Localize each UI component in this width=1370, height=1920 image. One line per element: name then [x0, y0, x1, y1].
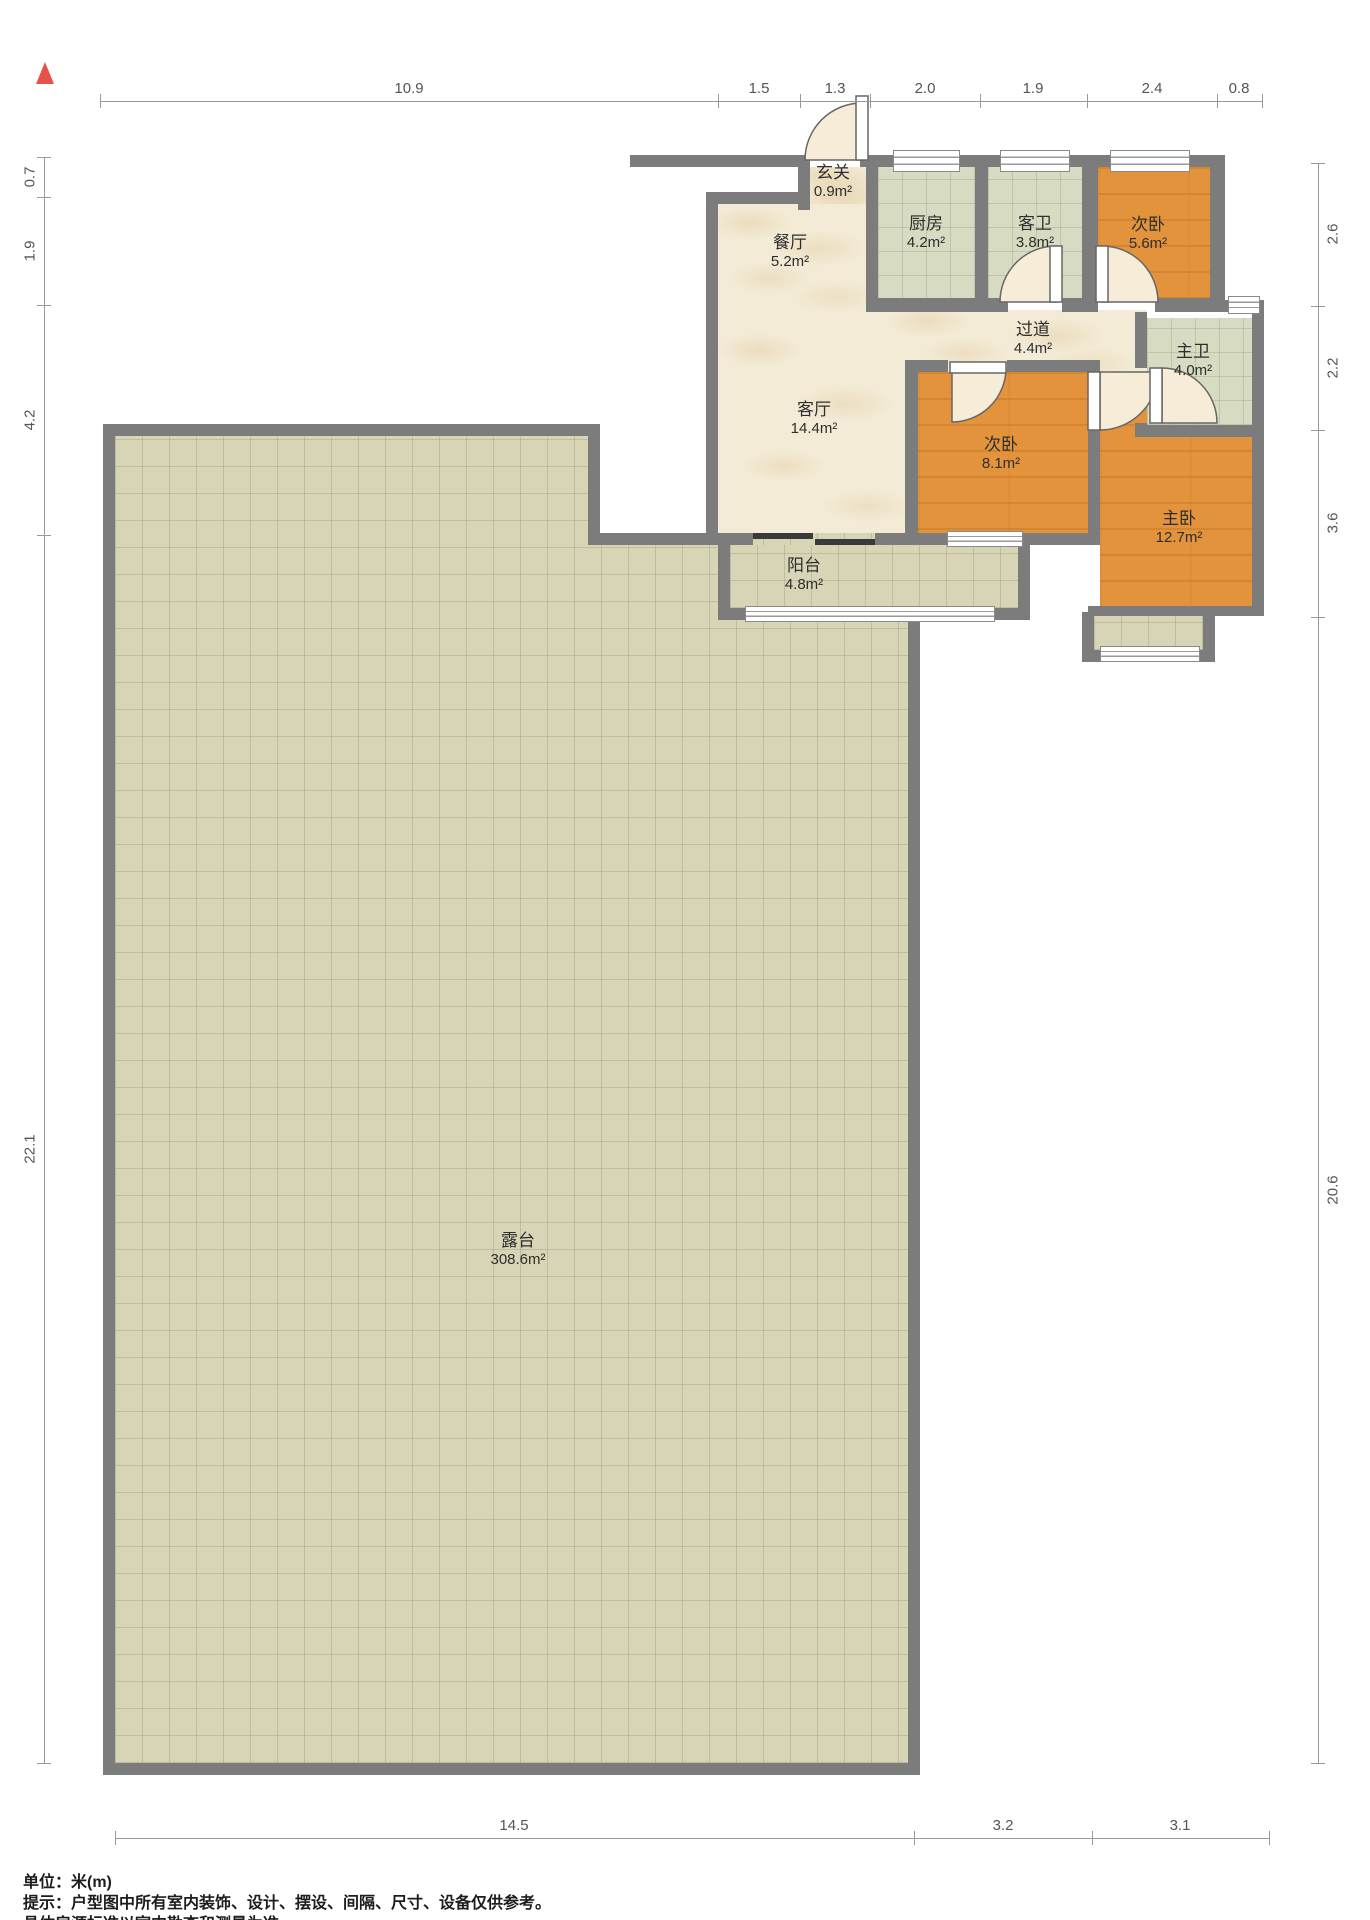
room-name: 餐厅 — [771, 233, 809, 253]
room-area: 4.0m² — [1174, 362, 1212, 380]
dim-tick — [800, 94, 801, 108]
room-name: 次卧 — [982, 435, 1020, 455]
room-label-living: 客厅 14.4m² — [791, 400, 838, 438]
room-name: 次卧 — [1129, 215, 1167, 235]
room-area: 5.2m² — [771, 253, 809, 271]
dim-tick — [718, 94, 719, 108]
door-arcs-layer — [0, 0, 1370, 1920]
dim-tick — [1087, 94, 1088, 108]
dim-tick — [37, 305, 51, 306]
guest-bath-door-arc — [1000, 246, 1056, 302]
dim-label: 2.2 — [1325, 358, 1342, 379]
dim-line-bottom — [115, 1838, 1269, 1839]
room-label-bedroom2: 次卧 5.6m² — [1129, 215, 1167, 253]
dim-tick — [115, 1831, 116, 1845]
room-label-master-bedroom: 主卧 12.7m² — [1156, 509, 1203, 547]
dim-label: 3.1 — [1170, 1817, 1191, 1834]
room-area: 4.8m² — [785, 576, 823, 594]
dim-label: 2.4 — [1142, 80, 1163, 97]
entry-door-leaf — [856, 96, 868, 160]
dim-label: 1.3 — [825, 80, 846, 97]
room-label-balcony: 阳台 4.8m² — [785, 556, 823, 594]
dim-tick — [980, 94, 981, 108]
dim-line-left — [44, 157, 45, 1763]
floorplan-canvas: 玄关 0.9m² 餐厅 5.2m² 厨房 4.2m² 客卫 3.8m² 次卧 5… — [0, 0, 1370, 1920]
dim-label: 20.6 — [1325, 1175, 1342, 1204]
room-area: 4.2m² — [907, 234, 945, 252]
dim-tick — [1311, 163, 1325, 164]
room-label-terrace: 露台 308.6m² — [490, 1231, 545, 1269]
room-name: 过道 — [1014, 320, 1052, 340]
room-area: 14.4m² — [791, 420, 838, 438]
dim-tick — [1311, 1763, 1325, 1764]
footer-note: 单位：米(m) 提示：户型图中所有室内装饰、设计、摆设、间隔、尺寸、设备仅供参考… — [23, 1872, 551, 1920]
master-bedroom-door-leaf — [1088, 372, 1100, 430]
dim-tick — [37, 1763, 51, 1764]
dim-tick — [1092, 1831, 1093, 1845]
dim-tick — [914, 1831, 915, 1845]
dim-label: 10.9 — [394, 80, 423, 97]
dim-tick — [1311, 306, 1325, 307]
dim-tick — [1311, 430, 1325, 431]
dim-tick — [37, 197, 51, 198]
dim-label: 0.8 — [1229, 80, 1250, 97]
room-label-hallway: 过道 4.4m² — [1014, 320, 1052, 358]
room-name: 客厅 — [791, 400, 838, 420]
dim-tick — [1217, 94, 1218, 108]
guest-bath-door-leaf — [1050, 246, 1062, 302]
footer-disclaimer-2: 具体房源标准以室内勘查和测量为准。 — [23, 1914, 551, 1920]
room-area: 4.4m² — [1014, 340, 1052, 358]
dim-tick — [37, 157, 51, 158]
room-area: 0.9m² — [814, 183, 852, 201]
bedroom3-door-leaf — [950, 362, 1006, 373]
dim-label: 14.5 — [499, 1817, 528, 1834]
bedroom2-door-arc — [1102, 246, 1158, 302]
footer-units: 单位：米(m) — [23, 1872, 551, 1893]
dim-label: 1.9 — [1023, 80, 1044, 97]
dim-label: 4.2 — [22, 410, 39, 431]
dim-label: 0.7 — [22, 167, 39, 188]
dim-label: 2.6 — [1325, 224, 1342, 245]
room-name: 主卫 — [1174, 342, 1212, 362]
dim-tick — [37, 535, 51, 536]
room-label-dining: 餐厅 5.2m² — [771, 233, 809, 271]
dim-tick — [1262, 94, 1263, 108]
room-name: 玄关 — [814, 163, 852, 183]
room-label-kitchen: 厨房 4.2m² — [907, 214, 945, 252]
room-label-master-bath: 主卫 4.0m² — [1174, 342, 1212, 380]
master-bath-door-leaf — [1150, 368, 1162, 423]
room-area: 3.8m² — [1016, 234, 1054, 252]
dim-label: 3.6 — [1325, 513, 1342, 534]
room-area: 308.6m² — [490, 1251, 545, 1269]
room-name: 阳台 — [785, 556, 823, 576]
room-label-entry: 玄关 0.9m² — [814, 163, 852, 201]
dim-tick — [100, 94, 101, 108]
dim-tick — [1311, 617, 1325, 618]
dim-tick — [870, 94, 871, 108]
bedroom2-door-leaf — [1096, 246, 1108, 302]
bedroom3-door-arc — [952, 368, 1006, 422]
dim-label: 1.9 — [22, 241, 39, 262]
dim-line-right — [1318, 163, 1319, 1763]
room-area: 8.1m² — [982, 455, 1020, 473]
footer-disclaimer-1: 提示：户型图中所有室内装饰、设计、摆设、间隔、尺寸、设备仅供参考。 — [23, 1893, 551, 1914]
room-name: 主卧 — [1156, 509, 1203, 529]
dim-label: 2.0 — [915, 80, 936, 97]
entry-door-arc — [805, 103, 862, 160]
room-label-guest-bath: 客卫 3.8m² — [1016, 214, 1054, 252]
room-name: 露台 — [490, 1231, 545, 1251]
room-name: 厨房 — [907, 214, 945, 234]
dim-tick — [1269, 1831, 1270, 1845]
room-area: 12.7m² — [1156, 529, 1203, 547]
room-name: 客卫 — [1016, 214, 1054, 234]
dim-label: 22.1 — [22, 1134, 39, 1163]
dim-label: 3.2 — [993, 1817, 1014, 1834]
room-area: 5.6m² — [1129, 235, 1167, 253]
room-label-bedroom3: 次卧 8.1m² — [982, 435, 1020, 473]
dim-label: 1.5 — [749, 80, 770, 97]
